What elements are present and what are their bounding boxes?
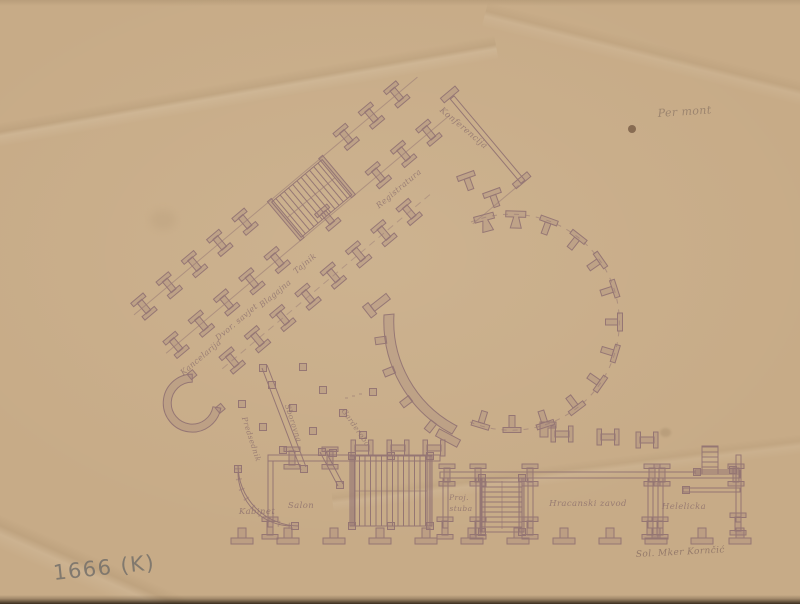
scanned-plan-sheet: Kancelarija Dvor. savjet Blagajna Tajnik… xyxy=(0,0,800,604)
secondary-staircase xyxy=(479,475,526,536)
wing-end-wall xyxy=(398,86,531,225)
room-label: Hracanski zavod xyxy=(548,499,627,509)
room-label: Tajnik xyxy=(292,251,318,275)
apse xyxy=(151,367,227,444)
grand-staircase xyxy=(349,453,434,530)
catalog-number: 1666 (K) xyxy=(52,550,156,585)
archival-note: Per mont xyxy=(656,103,712,120)
room-label: Sborovna xyxy=(283,403,304,443)
circular-courtyard-colonnade xyxy=(470,211,623,433)
room-label: stuba xyxy=(450,504,473,513)
room-label: Kancelarija xyxy=(178,338,223,378)
room-label: Kabinet xyxy=(238,507,275,517)
room-label: Helelicka xyxy=(661,502,706,512)
bottom-wing: Kabinet Salon Proj. stuba Hracanski zavo… xyxy=(231,440,751,544)
wing-staircase xyxy=(267,155,355,240)
signature: Sol. Mker Kornčić xyxy=(636,544,726,560)
room-label: Predsednik xyxy=(240,415,263,463)
room-label: Garderoba xyxy=(340,407,373,448)
curved-gallery-wall xyxy=(363,293,461,447)
room-label: Proj. xyxy=(448,493,469,502)
photo-edge-shadow xyxy=(0,595,800,604)
diagonal-wing: Kancelarija Dvor. savjet Blagajna Tajnik… xyxy=(95,54,530,456)
floor-plan-drawing: Kancelarija Dvor. savjet Blagajna Tajnik… xyxy=(0,0,800,604)
room-label: Salon xyxy=(288,501,314,511)
